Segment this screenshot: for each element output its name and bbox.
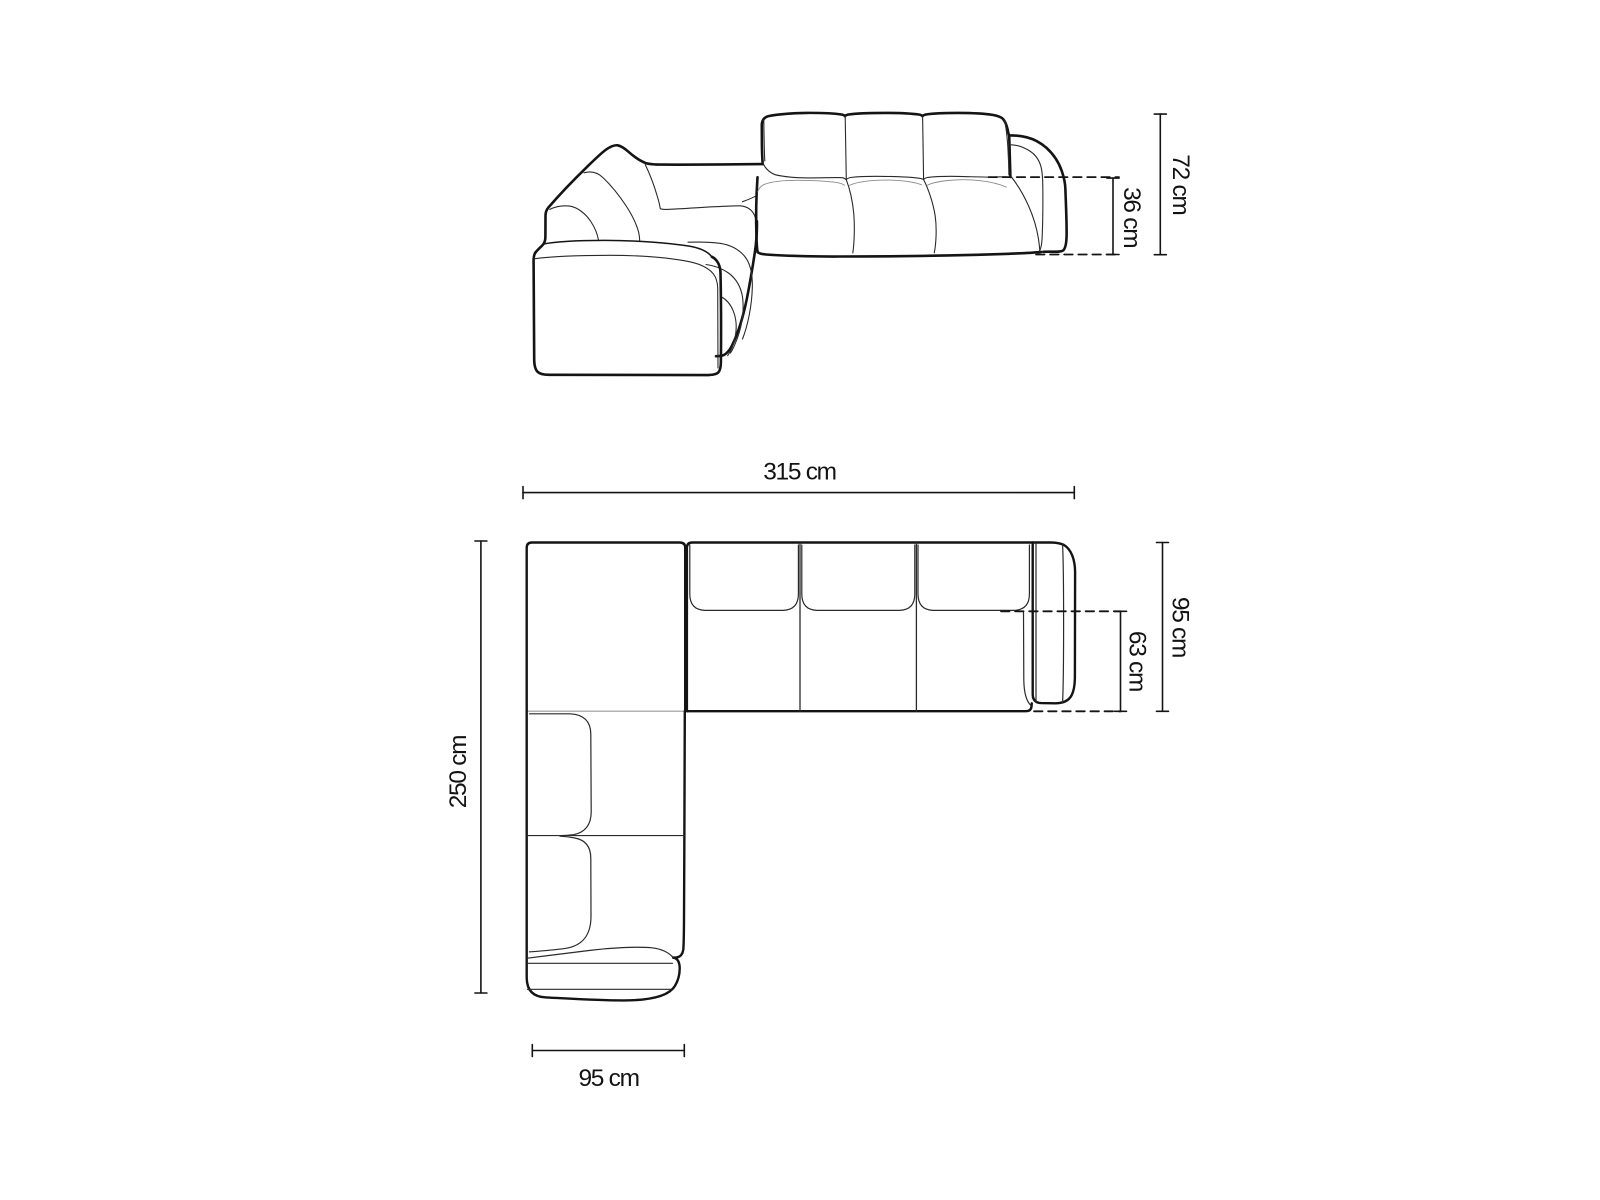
svg-text:72 cm: 72 cm — [1167, 154, 1194, 214]
svg-text:250 cm: 250 cm — [445, 736, 472, 809]
svg-text:315 cm: 315 cm — [763, 459, 836, 486]
svg-text:95 cm: 95 cm — [578, 1065, 638, 1092]
svg-text:95 cm: 95 cm — [1167, 597, 1194, 657]
svg-text:36 cm: 36 cm — [1118, 187, 1145, 247]
svg-text:63 cm: 63 cm — [1124, 631, 1151, 691]
